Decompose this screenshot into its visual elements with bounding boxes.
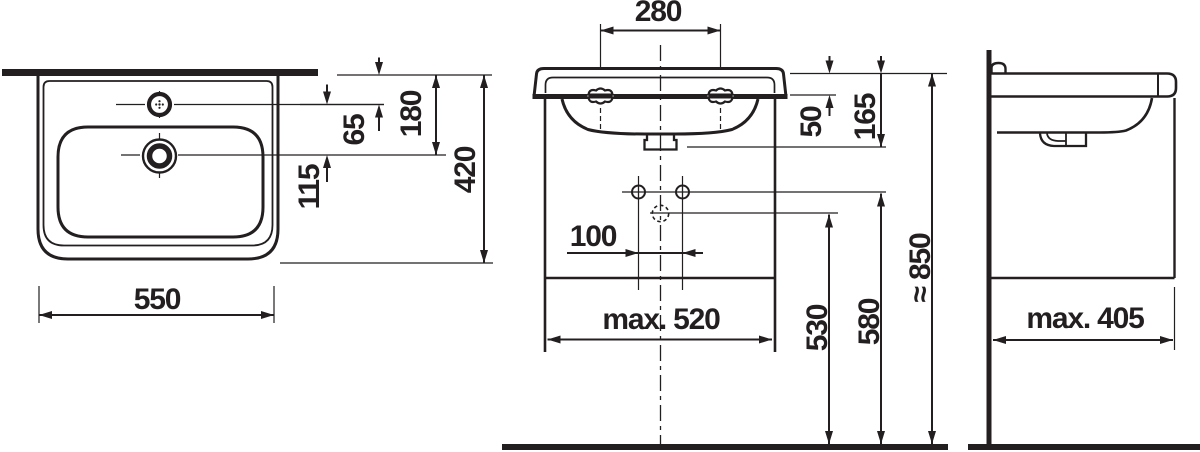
wall-line-side bbox=[987, 50, 992, 444]
dim-580: 580 bbox=[853, 194, 886, 445]
drain-trap-side bbox=[1040, 134, 1086, 147]
basin-side-bowl bbox=[997, 98, 1152, 133]
dim-max-405: max. 405 bbox=[993, 302, 1173, 344]
dim-115-label: 115 bbox=[293, 164, 326, 209]
dim-165-label: 165 bbox=[849, 93, 882, 140]
dim-180-label: 180 bbox=[395, 90, 428, 137]
dim-420-label: 420 bbox=[449, 146, 482, 193]
basin-side-rim bbox=[992, 74, 1177, 97]
front-view: 280 50 165 100 max. 520 5 bbox=[502, 0, 948, 450]
floor-line-front bbox=[502, 444, 948, 450]
dim-165: 165 bbox=[849, 56, 885, 147]
dim-50: 50 bbox=[795, 56, 834, 137]
fixing-hole-left bbox=[632, 186, 645, 199]
max-unit-envelope-side bbox=[992, 98, 1175, 278]
dim-420: 420 bbox=[449, 75, 488, 263]
side-view: max. 405 bbox=[968, 50, 1200, 450]
dim-280-label: 280 bbox=[635, 0, 682, 28]
dim-65: 65 bbox=[338, 58, 383, 146]
dim-580-label: 580 bbox=[853, 298, 886, 345]
dim-max-520-label: max. 520 bbox=[602, 303, 720, 336]
dim-550: 550 bbox=[39, 283, 274, 323]
floor-line-side bbox=[968, 444, 1200, 450]
dim-max-405-label: max. 405 bbox=[1026, 302, 1144, 335]
dim-850: ≈ 850 bbox=[904, 74, 937, 445]
dim-530-label: 530 bbox=[801, 304, 834, 351]
dim-850-label: ≈ 850 bbox=[904, 233, 937, 302]
dim-180: 180 bbox=[395, 75, 440, 155]
tap-hole bbox=[149, 94, 170, 115]
dim-65-label: 65 bbox=[338, 114, 371, 145]
dim-550-label: 550 bbox=[134, 283, 181, 316]
dim-max-520: max. 520 bbox=[548, 303, 773, 344]
dim-50-label: 50 bbox=[795, 106, 828, 137]
drawing-canvas: 65 115 180 420 550 bbox=[0, 0, 1200, 452]
dim-280: 280 bbox=[601, 0, 721, 35]
technical-drawing-washbasin: 65 115 180 420 550 bbox=[0, 0, 1200, 452]
wall-section-bar bbox=[2, 69, 318, 76]
dim-530: 530 bbox=[801, 215, 834, 445]
drain-hole bbox=[143, 140, 176, 173]
mounting-bolt-right bbox=[708, 87, 734, 106]
basin-back-lip bbox=[992, 63, 1006, 74]
dim-100-label: 100 bbox=[570, 220, 617, 253]
dim-115: 115 bbox=[293, 85, 384, 210]
top-view: 65 115 180 420 550 bbox=[2, 58, 493, 324]
mounting-bolt-left bbox=[588, 87, 614, 106]
fixing-hole-right bbox=[676, 186, 689, 199]
